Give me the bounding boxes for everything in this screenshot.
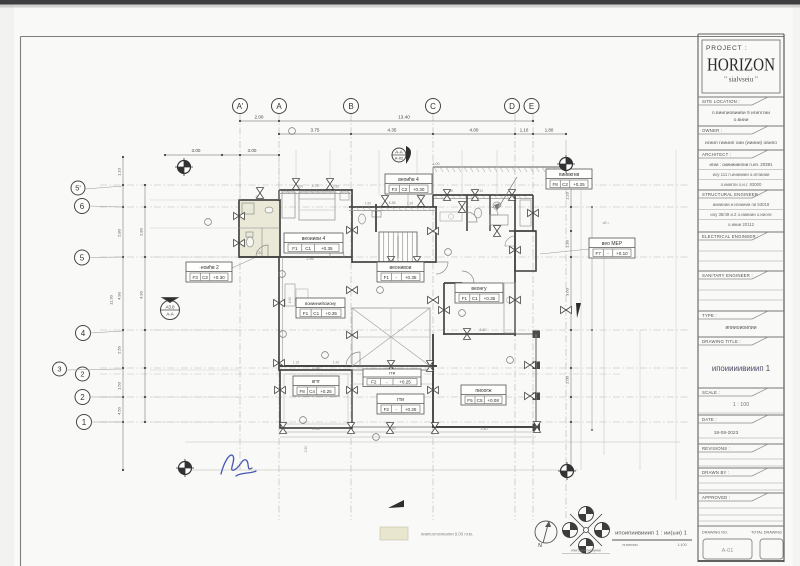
svg-text:F1: F1 — [303, 311, 309, 316]
svg-text:ипоиииивииип 1: ипоиииивииип 1 — [712, 364, 770, 373]
svg-text:C: C — [430, 102, 436, 111]
svg-text:пгиигпии: пгиигпии — [622, 543, 637, 547]
svg-text:ипииоиоипии: ипииоиоипии — [725, 325, 756, 331]
svg-text:3.00: 3.00 — [192, 148, 201, 153]
svg-text:4.50: 4.50 — [117, 406, 122, 415]
svg-text:2.85: 2.85 — [333, 185, 339, 189]
svg-text:OWNER :: OWNER : — [702, 128, 722, 133]
svg-text:F1: F1 — [462, 296, 468, 301]
svg-text:1 : 100: 1 : 100 — [733, 402, 750, 408]
svg-text:пиивкгнв: пиивкгнв — [559, 172, 580, 178]
svg-text:A-02: A-02 — [395, 156, 404, 161]
svg-text:1.30: 1.30 — [565, 239, 570, 248]
svg-text:ARCHITECT :: ARCHITECT : — [702, 152, 731, 157]
svg-text:11.30: 11.30 — [109, 294, 114, 304]
svg-text:B: B — [348, 102, 353, 111]
svg-text:4.35: 4.35 — [389, 201, 396, 205]
svg-text:F1: F1 — [292, 246, 298, 251]
svg-text:A-01: A-01 — [722, 548, 734, 554]
svg-text:A-A: A-A — [166, 312, 173, 317]
svg-text:+0.35: +0.35 — [484, 296, 496, 301]
svg-text:" sialvseiu ": " sialvseiu " — [724, 76, 758, 84]
svg-text:иб =: иб = — [603, 221, 610, 225]
svg-text:пиипоотоипоипи 9.00 пг.м.: пиипоотоипоипи 9.00 пг.м. — [421, 532, 473, 537]
svg-text:+0.25: +0.25 — [573, 182, 585, 187]
svg-text:+0.35: +0.35 — [405, 275, 417, 280]
svg-text:2.40: 2.40 — [480, 328, 487, 332]
svg-text:+0.25: +0.25 — [405, 407, 417, 412]
svg-text:5': 5' — [75, 184, 81, 193]
svg-text:6: 6 — [80, 202, 85, 211]
svg-text:F3: F3 — [192, 275, 198, 280]
svg-text:·еоићв 2: ·еоићв 2 — [199, 265, 219, 271]
svg-text:A-A: A-A — [395, 150, 403, 155]
svg-text:A: A — [276, 102, 282, 111]
svg-text:A3.0: A3.0 — [165, 305, 175, 310]
svg-text:2.50: 2.50 — [117, 345, 122, 354]
svg-text:4.90: 4.90 — [139, 290, 144, 299]
svg-text:F1: F1 — [384, 275, 390, 280]
svg-text:C2: C2 — [401, 187, 407, 192]
svg-text:1.50: 1.50 — [117, 381, 122, 390]
svg-text:SITE LOCATION :: SITE LOCATION : — [702, 99, 740, 104]
svg-text:C1: C1 — [472, 296, 478, 301]
svg-text:TOTAL DRAWING: TOTAL DRAWING — [751, 531, 782, 535]
svg-text:C2: C2 — [562, 182, 568, 187]
svg-text:F2: F2 — [371, 379, 377, 384]
svg-text:+0.25: +0.25 — [320, 389, 332, 394]
svg-text:1.20: 1.20 — [565, 191, 570, 200]
svg-text:2.50: 2.50 — [304, 446, 308, 453]
svg-text:2.80: 2.80 — [117, 228, 122, 237]
svg-text:+0.35: +0.35 — [321, 246, 333, 251]
svg-text:3.75: 3.75 — [311, 128, 320, 133]
svg-text:игиип гиииип оии (иииии) овипо: игиип гиииип оии (иииии) овипо — [705, 140, 777, 146]
svg-text:+0.30: +0.30 — [413, 187, 425, 192]
svg-text:STRUCTURAL ENGINEER :: STRUCTURAL ENGINEER : — [702, 192, 761, 197]
svg-text:2.80: 2.80 — [139, 227, 144, 236]
svg-text:DATE :: DATE : — [702, 417, 717, 422]
svg-text:гти: гти — [397, 397, 404, 403]
svg-text:+0.08: +0.08 — [487, 398, 499, 403]
svg-text:о.виии: о.виии — [734, 118, 749, 123]
svg-text:веоииои 4: веоииои 4 — [302, 236, 326, 242]
svg-text:2.35: 2.35 — [313, 427, 320, 431]
svg-text:3.75: 3.75 — [312, 184, 319, 188]
svg-text:SANITARY ENGINEER :: SANITARY ENGINEER : — [702, 273, 753, 278]
svg-text:C5: C5 — [477, 398, 483, 403]
svg-text:3: 3 — [57, 365, 61, 374]
svg-text:2.35: 2.35 — [313, 366, 320, 370]
svg-text:F8: F8 — [299, 389, 305, 394]
svg-text:иоу 111 п.иииииии о.игпииии: иоу 111 п.иииииии о.игпииии — [713, 172, 770, 177]
svg-text:1.80: 1.80 — [256, 251, 262, 255]
svg-text:5: 5 — [80, 253, 85, 262]
svg-text:веонивои: веонивои — [390, 265, 412, 271]
svg-text:2: 2 — [80, 370, 84, 379]
svg-text:3.00: 3.00 — [248, 148, 257, 153]
svg-text:E: E — [529, 102, 534, 111]
svg-text:DRAWING NO.: DRAWING NO. — [702, 531, 728, 535]
svg-text:+0.30: +0.30 — [213, 275, 225, 280]
svg-text:кгтг: кгтг — [312, 379, 320, 385]
svg-text:п.виипиовииви 9 игипггии: п.виипиовииви 9 игипггии — [712, 110, 770, 116]
svg-text:C4: C4 — [309, 389, 315, 394]
svg-text:пиоогж: пиоогж — [475, 388, 492, 394]
svg-text:4.35: 4.35 — [388, 128, 397, 133]
svg-text:1.15: 1.15 — [293, 361, 299, 365]
svg-text:иоу 38/48 и.2 о.ииииии о.ииоги: иоу 38/48 и.2 о.ииииии о.ииоги — [710, 212, 772, 217]
svg-text:+0.35: +0.35 — [325, 311, 337, 316]
svg-text:1.20: 1.20 — [333, 361, 339, 365]
svg-text:4.90: 4.90 — [288, 297, 292, 304]
svg-text:PROJECT :: PROJECT : — [706, 45, 748, 52]
svg-text:+0.10: +0.10 — [616, 251, 628, 256]
svg-text:ипоипиивииип 1 : ии(ыи) 1: ипоипиивииип 1 : ии(ыи) 1 — [615, 531, 687, 537]
svg-text:F7: F7 — [595, 251, 601, 256]
svg-text:2.00: 2.00 — [255, 115, 264, 120]
svg-text:веоићв 4: веоићв 4 — [398, 177, 419, 183]
svg-text:2: 2 — [80, 393, 85, 402]
svg-text:C1: C1 — [313, 311, 319, 316]
svg-text:4.00: 4.00 — [470, 128, 479, 133]
svg-text:веонгу: веонгу — [471, 286, 487, 292]
svg-text:игии : оииииииигии п.ип. 20391: игии : оииииииигии п.ип. 20391 — [709, 162, 773, 167]
svg-text:вео MEP: вео MEP — [602, 241, 623, 247]
svg-text:1.10: 1.10 — [117, 167, 122, 176]
svg-text:DRAWN BY :: DRAWN BY : — [702, 470, 729, 475]
svg-text:F3: F3 — [392, 187, 398, 192]
svg-text:1:100: 1:100 — [677, 543, 687, 547]
svg-text:F8: F8 — [552, 182, 558, 187]
svg-text:4.00: 4.00 — [433, 162, 440, 166]
svg-text:APPROVED :: APPROVED : — [702, 495, 730, 500]
svg-text:1.10: 1.10 — [520, 128, 529, 133]
svg-text:3.40: 3.40 — [481, 427, 488, 431]
svg-text:A': A' — [237, 102, 244, 111]
svg-text:18-08-2023: 18-08-2023 — [714, 430, 739, 436]
svg-text:1: 1 — [82, 418, 87, 427]
svg-text:REVISIONS :: REVISIONS : — [702, 446, 730, 451]
svg-text:13.40: 13.40 — [398, 115, 410, 120]
svg-text:2.95: 2.95 — [307, 257, 314, 261]
svg-text:3.60: 3.60 — [565, 287, 570, 296]
svg-text:4: 4 — [81, 329, 86, 338]
svg-text:4.90: 4.90 — [117, 291, 122, 300]
svg-text:HORIZON: HORIZON — [707, 55, 775, 75]
svg-text:F5: F5 — [467, 398, 473, 403]
svg-text:ипигоипигпиииуиип: ипигоипигпиииуиип — [571, 549, 602, 553]
svg-text:N: N — [538, 543, 542, 549]
svg-text:2.00: 2.00 — [565, 375, 570, 384]
svg-text:1.50: 1.50 — [365, 202, 371, 206]
svg-text:ELECTRICAL ENGINEER :: ELECTRICAL ENGINEER : — [702, 234, 759, 239]
svg-text:о.ииии 20112: о.ииии 20112 — [728, 222, 755, 227]
svg-text:DRAWING TITLE :: DRAWING TITLE : — [702, 339, 741, 344]
svg-text:SCALE :: SCALE : — [702, 390, 720, 395]
svg-text:+0.25: +0.25 — [399, 379, 411, 384]
svg-text:C1: C1 — [305, 246, 311, 251]
svg-text:F2: F2 — [384, 407, 390, 412]
svg-text:C2: C2 — [202, 275, 208, 280]
svg-text:гти: гти — [389, 370, 396, 375]
svg-text:воииини/воиоиу: воииини/воиоиу — [305, 301, 337, 306]
svg-text:иииииии и.игиииии пи 53019: иииииии и.игиииии пи 53019 — [713, 202, 770, 207]
svg-text:TYPE :: TYPE : — [702, 313, 717, 318]
svg-text:D: D — [509, 102, 515, 111]
svg-text:о.ииипги о.и.г. 83000: о.ииипги о.и.г. 83000 — [721, 182, 762, 187]
svg-text:1.80: 1.80 — [545, 128, 554, 133]
